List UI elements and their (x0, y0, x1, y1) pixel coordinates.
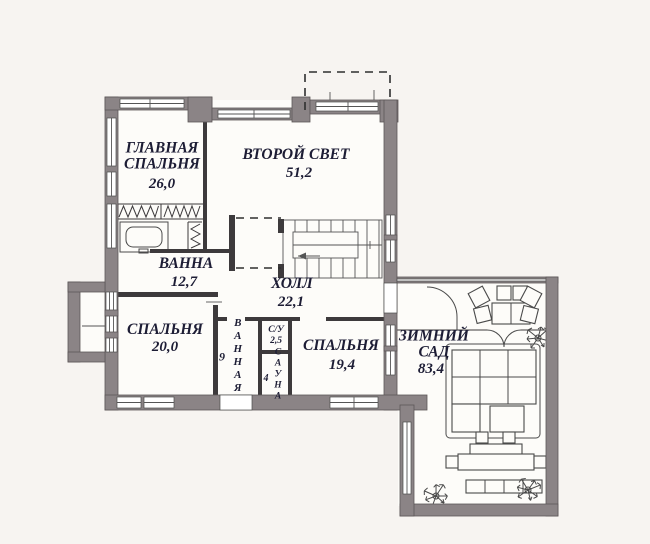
room-label-sauna: САУНА (272, 348, 282, 403)
room-label-master-bedroom: ГЛАВНАЯ СПАЛЬНЯ (105, 141, 219, 174)
room-area-bedroom-19: 19,4 (329, 358, 355, 374)
room-label-bath: ВАННА (159, 256, 214, 272)
room-label-bathroom: ВАННАЯ (231, 317, 243, 395)
room-area-second-light: 51,2 (286, 166, 312, 182)
room-label-second-light: ВТОРОЙ СВЕТ (243, 147, 350, 163)
room-area-bath: 12,7 (171, 275, 197, 291)
room-label-wc: С/У (268, 326, 284, 336)
room-area-master-bedroom: 26,0 (149, 177, 175, 193)
room-area-sauna: 4 (264, 374, 269, 385)
room-label-winter-garden: ЗИМНИЙ САД (390, 329, 478, 362)
room-label-bedroom-19: СПАЛЬНЯ (303, 338, 379, 354)
room-area-hall: 22,1 (278, 295, 304, 311)
plan-drawing (0, 0, 650, 544)
room-area-bathroom: 9 (219, 351, 225, 364)
room-area-wc: 2,5 (270, 337, 282, 347)
room-area-winter-garden: 83,4 (418, 362, 444, 378)
room-area-bedroom-20: 20,0 (152, 340, 178, 356)
floor-plan: ГЛАВНАЯ СПАЛЬНЯ 26,0 ВТОРОЙ СВЕТ 51,2 ВА… (0, 0, 650, 544)
room-label-bedroom-20: СПАЛЬНЯ (127, 322, 203, 338)
dining-table-icon (468, 286, 542, 324)
room-label-hall: ХОЛЛ (271, 276, 313, 292)
